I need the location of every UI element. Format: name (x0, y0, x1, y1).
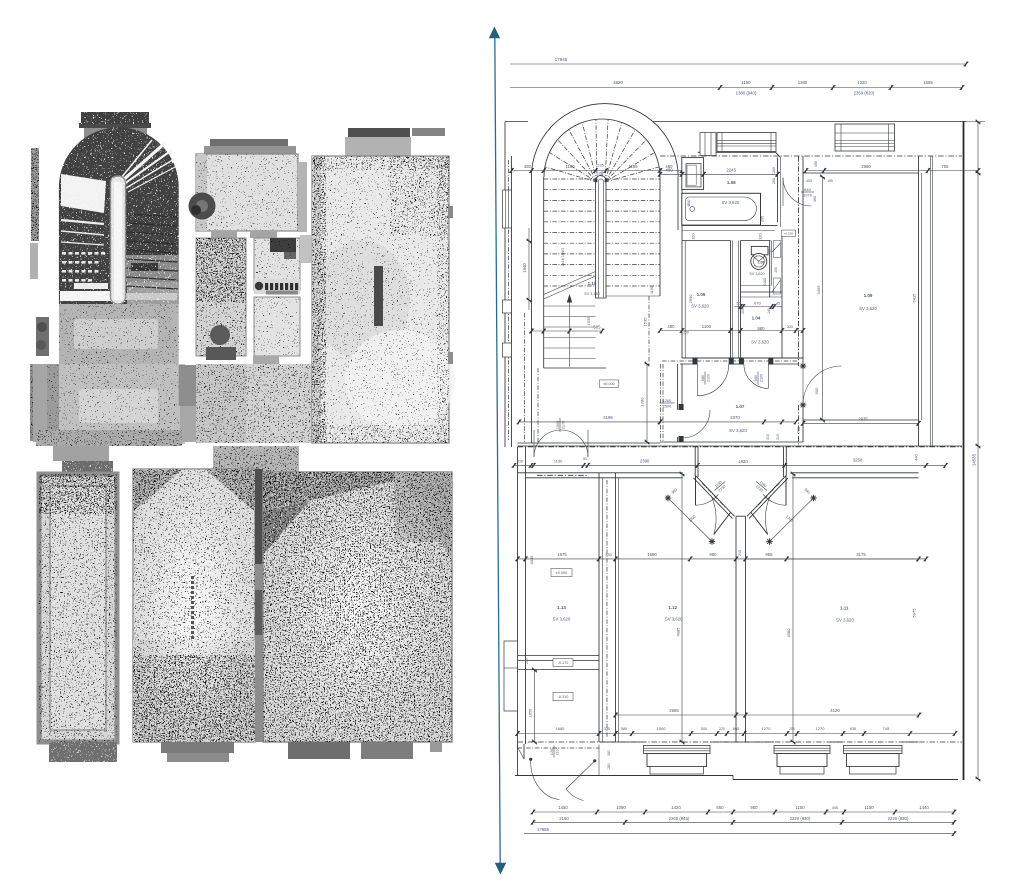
svg-text:4980: 4980 (786, 628, 791, 638)
svg-text:295: 295 (761, 216, 765, 222)
svg-text:480: 480 (666, 168, 674, 173)
svg-text:580: 580 (621, 727, 627, 731)
svg-text:2390: 2390 (640, 459, 650, 464)
svg-text:1380 (940): 1380 (940) (736, 91, 757, 96)
svg-text:1.10: 1.10 (588, 281, 597, 286)
svg-text:235: 235 (597, 163, 604, 168)
svg-text:405: 405 (806, 179, 812, 183)
svg-text:2220 (830): 2220 (830) (790, 816, 811, 821)
svg-text:640: 640 (804, 187, 811, 192)
svg-text:1.06: 1.06 (758, 261, 765, 265)
svg-text:295: 295 (789, 727, 795, 731)
svg-text:390: 390 (607, 750, 611, 756)
svg-text:17885: 17885 (537, 827, 550, 832)
svg-text:360: 360 (813, 196, 817, 202)
svg-text:195: 195 (827, 179, 833, 183)
svg-text:2100: 2100 (706, 374, 710, 382)
svg-text:320: 320 (691, 233, 695, 239)
svg-text:440: 440 (915, 454, 919, 460)
svg-text:310: 310 (517, 460, 523, 464)
svg-text:755: 755 (941, 164, 949, 169)
svg-text:6415: 6415 (912, 293, 917, 303)
svg-text:1190: 1190 (650, 286, 654, 294)
svg-text:3175: 3175 (856, 552, 866, 557)
svg-text:2100: 2100 (759, 374, 763, 382)
svg-text:2220 (830): 2220 (830) (888, 816, 909, 821)
svg-text:1450: 1450 (558, 805, 568, 810)
svg-text:665: 665 (733, 727, 739, 731)
svg-text:4405: 4405 (763, 278, 767, 286)
svg-text:1595: 1595 (923, 80, 933, 85)
svg-text:1690: 1690 (647, 552, 657, 557)
svg-text:-0.310: -0.310 (558, 695, 569, 699)
svg-text:1180: 1180 (565, 164, 575, 169)
svg-text:140: 140 (767, 308, 771, 314)
svg-text:1150: 1150 (741, 80, 751, 85)
svg-text:480: 480 (667, 324, 675, 329)
svg-text:1970: 1970 (803, 192, 813, 197)
svg-text:690: 690 (754, 375, 758, 381)
svg-text:2245: 2245 (726, 167, 736, 172)
svg-text:280: 280 (607, 763, 611, 769)
svg-text:SV 3,620: SV 3,620 (691, 304, 709, 309)
svg-text:1.13: 1.13 (557, 605, 566, 610)
svg-text:±0.000: ±0.000 (603, 382, 615, 386)
svg-text:1.09: 1.09 (864, 293, 873, 298)
svg-text:270: 270 (525, 658, 529, 664)
svg-text:500: 500 (701, 727, 707, 731)
svg-text:4120: 4120 (830, 708, 840, 713)
svg-text:1100: 1100 (702, 324, 712, 329)
svg-text:980: 980 (709, 552, 717, 557)
svg-text:2100: 2100 (555, 748, 559, 756)
svg-text:1110: 1110 (596, 172, 603, 176)
svg-text:1420: 1420 (671, 805, 681, 810)
svg-text:1.12: 1.12 (668, 605, 677, 610)
svg-text:1270: 1270 (762, 726, 772, 731)
svg-text:2260 (845): 2260 (845) (669, 816, 690, 821)
svg-text:1.05: 1.05 (697, 292, 706, 297)
svg-text:1260: 1260 (663, 399, 671, 403)
svg-text:SV 3,620: SV 3,620 (665, 617, 683, 622)
svg-text:560: 560 (716, 805, 724, 810)
svg-text:1940: 1940 (522, 263, 527, 273)
svg-text:965: 965 (765, 552, 773, 557)
svg-text:1380: 1380 (798, 80, 808, 85)
svg-text:1150: 1150 (864, 805, 874, 810)
svg-text:760: 760 (797, 427, 801, 433)
svg-text:1675: 1675 (557, 552, 567, 557)
svg-text:SV 3,620: SV 3,620 (553, 617, 571, 622)
svg-text:SV 3,620: SV 3,620 (859, 306, 877, 311)
svg-text:1.04: 1.04 (752, 316, 761, 321)
svg-text:670: 670 (754, 301, 761, 306)
svg-text:SV 3,620: SV 3,620 (749, 272, 764, 276)
svg-text:260: 260 (772, 167, 776, 173)
svg-text:-0.170: -0.170 (558, 661, 569, 665)
svg-text:1440: 1440 (919, 805, 929, 810)
svg-text:1050: 1050 (550, 748, 554, 756)
svg-text:250: 250 (741, 308, 745, 314)
svg-text:SV 3,620: SV 3,620 (722, 200, 740, 205)
svg-text:+0.150: +0.150 (784, 232, 794, 236)
svg-text:5975: 5975 (912, 608, 917, 618)
svg-text:900: 900 (814, 387, 819, 394)
svg-text:1920: 1920 (738, 459, 748, 464)
svg-text:±0.000: ±0.000 (556, 571, 568, 575)
svg-text:1535: 1535 (643, 317, 648, 327)
svg-text:Ø50: Ø50 (687, 200, 691, 207)
svg-text:SV 3,620: SV 3,620 (729, 428, 747, 433)
svg-text:2935: 2935 (858, 417, 868, 422)
svg-text:215: 215 (738, 550, 742, 556)
svg-text:2370: 2370 (730, 415, 740, 420)
svg-text:1270: 1270 (816, 726, 826, 731)
svg-text:3250: 3250 (853, 458, 863, 463)
svg-text:17945: 17945 (555, 57, 568, 62)
svg-text:1130: 1130 (554, 459, 563, 464)
svg-text:320: 320 (787, 325, 793, 329)
svg-text:315: 315 (776, 434, 780, 440)
svg-text:585: 585 (593, 325, 601, 330)
svg-text:1685: 1685 (556, 726, 566, 731)
svg-text:1780: 1780 (640, 397, 645, 407)
svg-text:680: 680 (701, 375, 705, 381)
svg-text:3495: 3495 (816, 285, 821, 295)
svg-text:2500: 2500 (663, 404, 671, 408)
svg-text:1.11: 1.11 (840, 606, 849, 611)
svg-text:1090: 1090 (616, 805, 626, 810)
svg-text:1540: 1540 (657, 726, 667, 731)
svg-text:1650: 1650 (529, 709, 533, 717)
svg-text:315: 315 (766, 434, 770, 440)
svg-text:1.07: 1.07 (736, 404, 745, 409)
svg-text:2980: 2980 (861, 164, 871, 169)
svg-text:2150: 2150 (559, 816, 569, 821)
svg-text:2x16 150/2: 2x16 150/2 (561, 248, 565, 267)
svg-text:335: 335 (604, 727, 610, 731)
svg-text:2665: 2665 (669, 708, 679, 713)
svg-text:45: 45 (776, 302, 780, 306)
svg-text:225: 225 (719, 727, 725, 731)
svg-text:1535: 1535 (586, 316, 591, 326)
svg-text:4620: 4620 (613, 80, 623, 85)
svg-text:1185: 1185 (628, 164, 638, 169)
svg-text:950: 950 (750, 805, 758, 810)
svg-text:50: 50 (583, 457, 587, 461)
svg-text:250: 250 (774, 267, 778, 273)
svg-text:SV 3,620: SV 3,620 (836, 618, 854, 623)
svg-text:260: 260 (772, 178, 776, 184)
svg-text:480: 480 (524, 164, 532, 169)
svg-text:320: 320 (759, 233, 763, 239)
svg-text:4045: 4045 (529, 555, 534, 565)
svg-text:405: 405 (832, 806, 838, 810)
svg-text:2350 (820): 2350 (820) (854, 91, 875, 96)
svg-text:1150: 1150 (795, 805, 805, 810)
svg-text:1320: 1320 (857, 80, 867, 85)
svg-text:2600: 2600 (688, 294, 693, 304)
svg-text:980: 980 (757, 326, 765, 331)
svg-text:330: 330 (605, 552, 612, 557)
svg-text:3195: 3195 (603, 415, 613, 420)
svg-text:745: 745 (883, 726, 890, 731)
svg-text:490: 490 (814, 161, 818, 167)
svg-text:150: 150 (683, 331, 689, 335)
svg-text:1.08: 1.08 (727, 180, 736, 185)
svg-text:14535: 14535 (972, 453, 977, 466)
svg-text:635: 635 (850, 727, 856, 731)
svg-text:4985: 4985 (676, 627, 681, 637)
svg-text:SV 3,620: SV 3,620 (751, 340, 769, 345)
svg-text:710: 710 (768, 249, 772, 255)
svg-text:SV 3,180: SV 3,180 (584, 292, 600, 296)
svg-text:55: 55 (737, 302, 741, 306)
